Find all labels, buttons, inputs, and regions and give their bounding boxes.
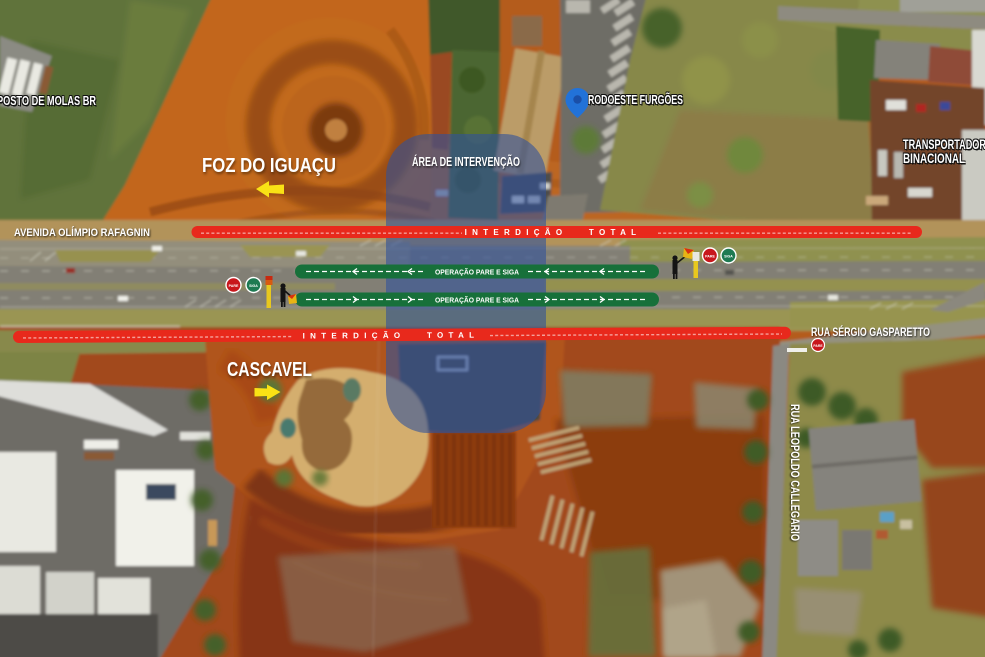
svg-text:OPERAÇÃO PARE E SIGA: OPERAÇÃO PARE E SIGA xyxy=(435,267,519,276)
svg-text:TRANSPORTADOR: TRANSPORTADOR xyxy=(903,137,985,152)
svg-text:ÁREA DE INTERVENÇÃO: ÁREA DE INTERVENÇÃO xyxy=(412,154,520,169)
svg-text:PARE: PARE xyxy=(813,344,823,348)
svg-text:CASCAVEL: CASCAVEL xyxy=(227,359,312,381)
svg-text:RUA SÉRGIO GASPARETTO: RUA SÉRGIO GASPARETTO xyxy=(811,326,930,339)
svg-text:SIGA: SIGA xyxy=(724,255,733,259)
svg-text:SIGA: SIGA xyxy=(249,284,258,288)
svg-text:PARE: PARE xyxy=(229,284,239,288)
svg-text:AVENIDA OLÍMPIO RAFAGNIN: AVENIDA OLÍMPIO RAFAGNIN xyxy=(14,226,150,239)
svg-text:INTERDIÇÃO TOTAL: INTERDIÇÃO TOTAL xyxy=(303,331,480,341)
svg-text:BINACIONAL: BINACIONAL xyxy=(903,151,965,166)
svg-text:RODOESTE FURGÕES: RODOESTE FURGÕES xyxy=(588,92,683,107)
svg-text:INTERDIÇÃO TOTAL: INTERDIÇÃO TOTAL xyxy=(465,228,642,237)
svg-text:FOZ DO IGUAÇU: FOZ DO IGUAÇU xyxy=(202,155,336,177)
svg-text:RUA LEOPOLDO CALLEGARIO: RUA LEOPOLDO CALLEGARIO xyxy=(788,404,800,541)
svg-text:PARE: PARE xyxy=(705,255,715,259)
svg-text:OPERAÇÃO PARE E SIGA: OPERAÇÃO PARE E SIGA xyxy=(435,295,519,304)
svg-text:POSTO DE MOLAS BR: POSTO DE MOLAS BR xyxy=(0,93,96,108)
